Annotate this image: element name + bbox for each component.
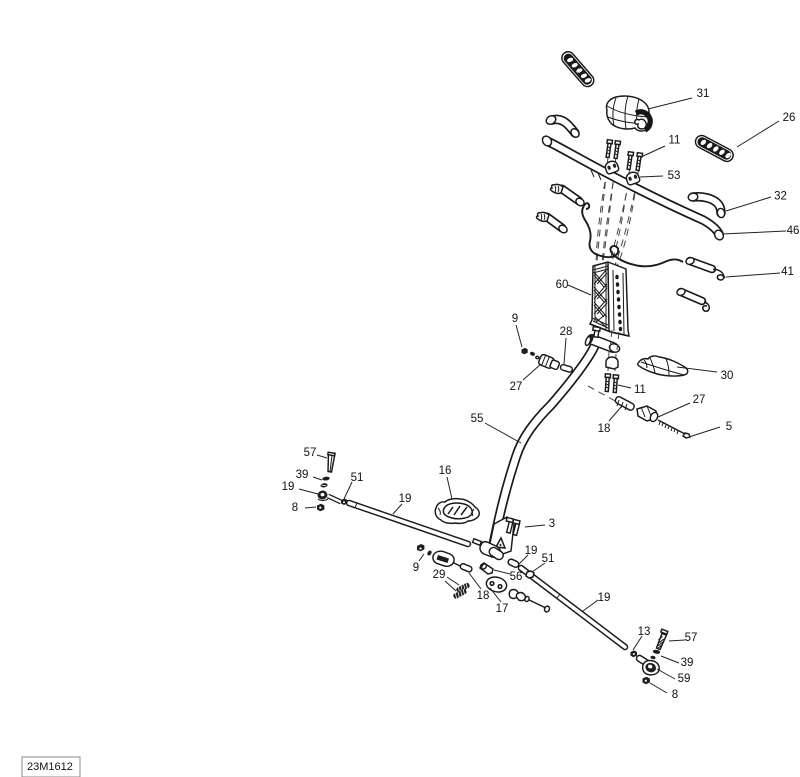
svg-text:27: 27 xyxy=(693,394,706,406)
svg-text:56: 56 xyxy=(510,571,523,583)
svg-text:59: 59 xyxy=(678,673,691,685)
svg-text:19: 19 xyxy=(598,592,611,604)
svg-text:18: 18 xyxy=(598,423,611,435)
svg-text:32: 32 xyxy=(774,191,787,203)
svg-text:11: 11 xyxy=(634,384,646,396)
svg-text:19: 19 xyxy=(282,481,295,493)
svg-text:9: 9 xyxy=(413,562,419,574)
svg-text:3: 3 xyxy=(549,518,555,530)
svg-text:5: 5 xyxy=(726,421,732,433)
svg-text:9: 9 xyxy=(512,313,518,325)
svg-text:30: 30 xyxy=(721,370,734,382)
svg-text:26: 26 xyxy=(783,112,796,124)
svg-text:31: 31 xyxy=(697,88,710,100)
svg-text:18: 18 xyxy=(477,590,490,602)
svg-text:51: 51 xyxy=(351,472,364,484)
svg-text:8: 8 xyxy=(672,689,678,701)
svg-text:23M1612: 23M1612 xyxy=(27,761,73,773)
svg-text:13: 13 xyxy=(638,626,651,638)
svg-text:39: 39 xyxy=(296,469,309,481)
svg-text:27: 27 xyxy=(510,381,523,393)
svg-text:51: 51 xyxy=(542,553,555,565)
svg-text:29: 29 xyxy=(433,569,446,581)
svg-text:19: 19 xyxy=(399,493,412,505)
svg-text:41: 41 xyxy=(781,266,794,278)
svg-text:60: 60 xyxy=(556,279,569,291)
svg-text:8: 8 xyxy=(292,502,298,514)
svg-text:11: 11 xyxy=(669,135,681,147)
svg-text:17: 17 xyxy=(496,603,509,615)
svg-text:55: 55 xyxy=(471,413,484,425)
svg-text:53: 53 xyxy=(668,170,681,182)
svg-text:57: 57 xyxy=(304,447,317,459)
svg-text:39: 39 xyxy=(681,657,694,669)
svg-text:28: 28 xyxy=(560,326,573,338)
svg-text:57: 57 xyxy=(685,632,698,644)
svg-text:19: 19 xyxy=(525,545,538,557)
svg-text:16: 16 xyxy=(439,465,452,477)
svg-text:46: 46 xyxy=(787,225,800,237)
